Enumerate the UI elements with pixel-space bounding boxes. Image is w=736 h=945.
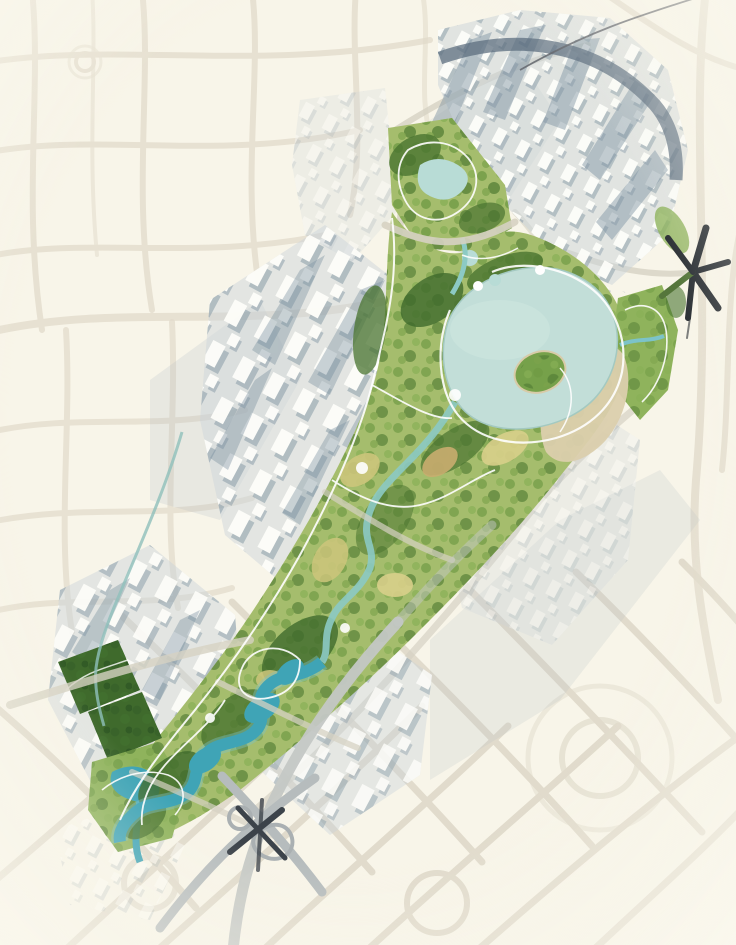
masterplan-svg [0,0,736,945]
corner-vignette [0,0,736,945]
masterplan-map [0,0,736,945]
